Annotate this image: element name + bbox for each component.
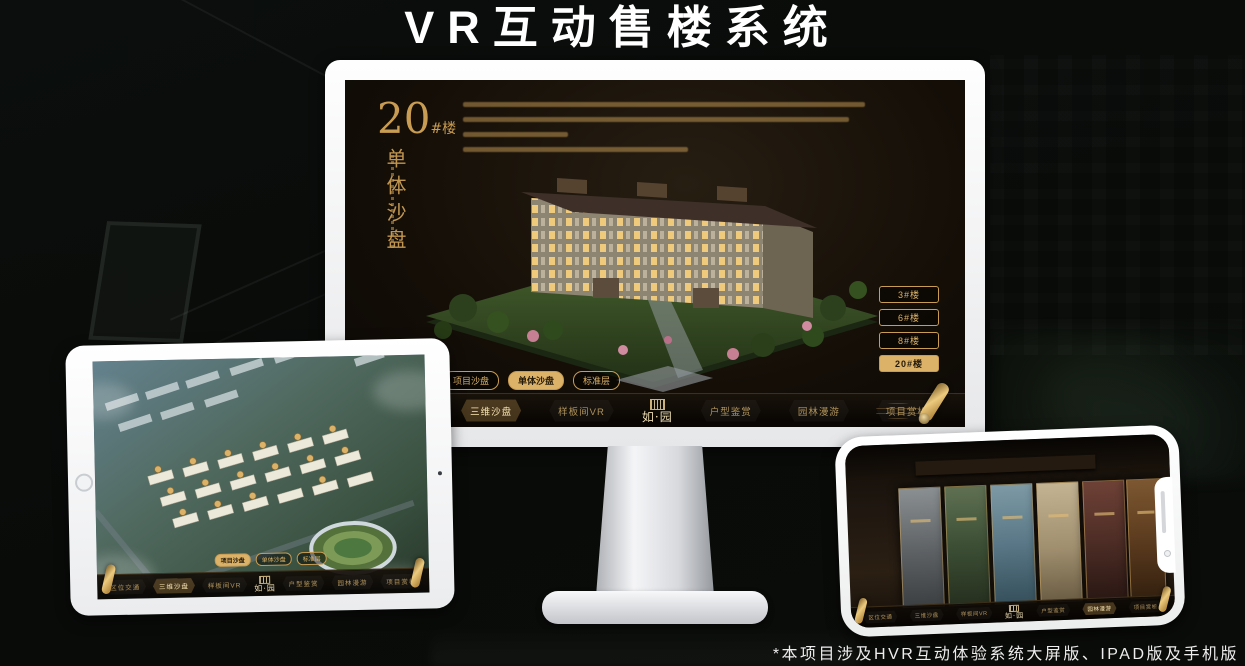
footnote-text: *本项目涉及HVR互动体验系统大屏版、IPAD版及手机版 (773, 640, 1239, 664)
brand-logo-text: 如·园 (254, 584, 276, 592)
nav-item-floorplan[interactable]: 户型鉴赏 (282, 575, 324, 591)
page-title: VR互动售楼系统 (0, 0, 1245, 56)
speaker-icon (1161, 491, 1167, 533)
gallery-panel[interactable] (944, 485, 991, 607)
unit-subtitle: 单体沙盘 (381, 148, 410, 256)
unit-subtitle-en-decor (391, 152, 394, 248)
home-button[interactable] (75, 473, 93, 491)
background-signboard (88, 221, 201, 343)
nav-item-3d-sandtable[interactable]: 三维沙盘 (153, 578, 195, 594)
brand-logo: 如·园 (1004, 604, 1024, 620)
nav-item-garden-roam[interactable]: 园林漫游 (331, 574, 373, 590)
view-mode-tabs: 项目沙盘 单体沙盘 标准层 (215, 552, 327, 567)
brand-seal-icon (259, 575, 270, 583)
tab-single-sandtable[interactable]: 单体沙盘 (256, 552, 292, 566)
nav-item-model-room-vr[interactable]: 样板间VR (202, 577, 248, 593)
brand-logo: 如·园 (254, 575, 276, 592)
gallery-panel[interactable] (898, 487, 945, 609)
nav-item-floorplan[interactable]: 户型鉴赏 (701, 400, 761, 422)
tab-standard-floor[interactable]: 标准层 (573, 371, 620, 390)
nav-item-location-transport[interactable]: 区位交通 (863, 610, 897, 623)
nav-item-garden-roam[interactable]: 园林漫游 (1082, 602, 1116, 615)
floor-button-3[interactable]: 3#楼 (879, 286, 939, 303)
promo-canvas: VR互动售楼系统 20#楼 单体沙盘 (0, 0, 1245, 666)
nav-item-model-room-vr[interactable]: 样板间VR (549, 400, 614, 422)
floor-button-6[interactable]: 6#楼 (879, 309, 939, 326)
nav-item-3d-sandtable[interactable]: 三维沙盘 (461, 400, 521, 422)
brand-logo-text: 如·园 (1005, 612, 1024, 620)
brand-seal-icon (650, 399, 665, 410)
brand-logo: 如·园 (642, 399, 673, 423)
tablet-screen: 项目沙盘 单体沙盘 标准层 区位交通 三维沙盘 样板间VR 如·园 户型鉴赏 园… (93, 355, 430, 600)
gallery-panel[interactable] (1036, 481, 1083, 603)
floor-selector: 3#楼 6#楼 8#楼 20#楼 (879, 286, 939, 372)
tab-project-sandtable[interactable]: 项目沙盘 (215, 553, 251, 567)
unit-number: 20 (377, 94, 430, 143)
phone-notch (1154, 477, 1176, 574)
monitor-stand-base (542, 591, 768, 624)
monitor-stand-neck (596, 446, 714, 596)
gallery-panel[interactable] (990, 483, 1037, 605)
tab-project-sandtable[interactable]: 项目沙盘 (443, 371, 499, 390)
gallery-panel[interactable] (1082, 480, 1129, 602)
nav-item-3d-sandtable[interactable]: 三维沙盘 (909, 609, 943, 622)
nav-item-model-room-vr[interactable]: 样板间VR (956, 607, 993, 620)
tab-single-sandtable[interactable]: 单体沙盘 (508, 371, 564, 390)
background-cityscape (990, 55, 1245, 355)
brand-seal-icon (1009, 604, 1019, 611)
tablet-device: 项目沙盘 单体沙盘 标准层 区位交通 三维沙盘 样板间VR 如·园 户型鉴赏 园… (65, 338, 455, 616)
tab-standard-floor[interactable]: 标准层 (297, 552, 327, 566)
building-render (411, 138, 897, 394)
unit-suffix: #楼 (430, 121, 456, 137)
view-mode-tabs: 项目沙盘 单体沙盘 标准层 (443, 371, 620, 390)
phone-device: 区位交通 三维沙盘 样板间VR 如·园 户型鉴赏 园林漫游 项目赏析 (834, 424, 1185, 637)
phone-camera-icon (1164, 550, 1171, 557)
brand-logo-text: 如·园 (642, 411, 673, 423)
scroll-flourish (875, 403, 921, 419)
floor-button-20[interactable]: 20#楼 (879, 355, 939, 372)
nav-item-floorplan[interactable]: 户型鉴赏 (1036, 604, 1070, 617)
tablet-camera-icon (438, 471, 442, 475)
phone-screen: 区位交通 三维沙盘 样板间VR 如·园 户型鉴赏 园林漫游 项目赏析 (845, 434, 1176, 628)
floor-button-8[interactable]: 8#楼 (879, 332, 939, 349)
nav-item-garden-roam[interactable]: 园林漫游 (789, 400, 849, 422)
